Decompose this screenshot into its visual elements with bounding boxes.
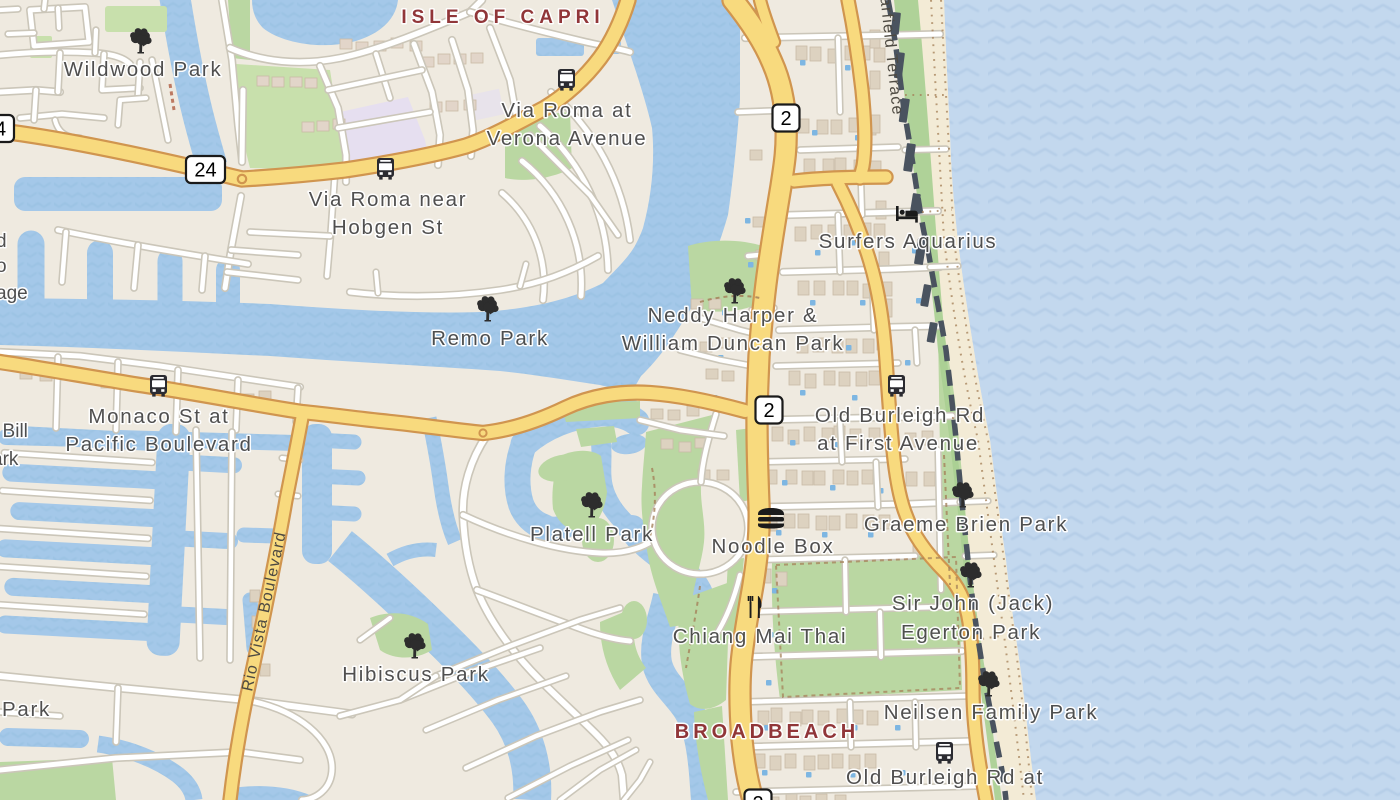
svg-text:age: age (0, 283, 28, 304)
svg-text:Via Roma at: Via Roma at (501, 99, 632, 122)
svg-text:Hobgen St: Hobgen St (332, 216, 444, 239)
svg-text:2: 2 (752, 793, 763, 800)
svg-text:ISLE OF CAPRI: ISLE OF CAPRI (401, 7, 604, 28)
svg-text:Pacific Boulevard: Pacific Boulevard (65, 433, 252, 456)
svg-text:Noodle Box: Noodle Box (712, 535, 835, 558)
svg-text:Surfers Aquarius: Surfers Aquarius (819, 230, 998, 253)
svg-text:William Duncan Park: William Duncan Park (622, 332, 845, 355)
svg-text:ark: ark (0, 449, 19, 470)
svg-text:t Bill: t Bill (0, 421, 28, 442)
svg-text:2: 2 (780, 108, 791, 130)
svg-text:Wildwood Park: Wildwood Park (64, 58, 223, 81)
svg-text:Old Burleigh Rd at: Old Burleigh Rd at (846, 766, 1044, 789)
svg-text:Hibiscus Park: Hibiscus Park (342, 663, 489, 686)
svg-text:2: 2 (763, 400, 774, 422)
svg-text:Park: Park (2, 698, 51, 721)
svg-text:Chiang Mai Thai: Chiang Mai Thai (673, 625, 847, 648)
svg-text:d: d (0, 231, 7, 252)
svg-text:Neddy Harper &: Neddy Harper & (648, 304, 819, 327)
svg-text:Neilsen Family Park: Neilsen Family Park (884, 701, 1099, 724)
svg-text:24: 24 (0, 119, 6, 141)
svg-text:at First Avenue: at First Avenue (817, 432, 979, 455)
svg-text:Via Roma near: Via Roma near (309, 188, 467, 211)
svg-text:Monaco St at: Monaco St at (88, 405, 229, 428)
svg-text:Remo Park: Remo Park (431, 327, 549, 350)
svg-text:Old Burleigh Rd: Old Burleigh Rd (815, 404, 985, 427)
svg-text:Sir John (Jack): Sir John (Jack) (892, 592, 1054, 615)
svg-text:Platell Park: Platell Park (530, 523, 654, 546)
svg-text:o: o (0, 256, 7, 277)
svg-text:Verona Avenue: Verona Avenue (487, 127, 648, 150)
svg-text:Graeme Brien Park: Graeme Brien Park (864, 513, 1068, 536)
svg-text:BROADBEACH: BROADBEACH (675, 721, 859, 743)
svg-text:24: 24 (194, 160, 216, 182)
svg-text:Egerton Park: Egerton Park (901, 621, 1041, 644)
